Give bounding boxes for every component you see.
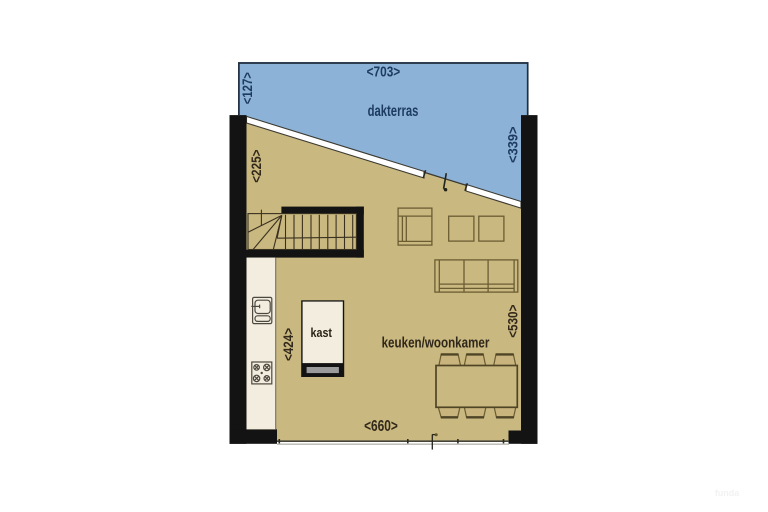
svg-text:<225>: <225> <box>249 149 264 182</box>
svg-text:<530>: <530> <box>506 305 521 338</box>
svg-text:kast: kast <box>311 325 333 340</box>
svg-text:keuken/woonkamer: keuken/woonkamer <box>382 334 490 351</box>
svg-text:<703>: <703> <box>367 63 401 80</box>
svg-text:<424>: <424> <box>281 328 296 361</box>
svg-text:<127>: <127> <box>240 72 255 104</box>
svg-text:<339>: <339> <box>506 126 521 163</box>
svg-text:<660>: <660> <box>364 418 398 435</box>
svg-text:funda: funda <box>715 488 740 498</box>
svg-text:dakterras: dakterras <box>368 103 419 120</box>
